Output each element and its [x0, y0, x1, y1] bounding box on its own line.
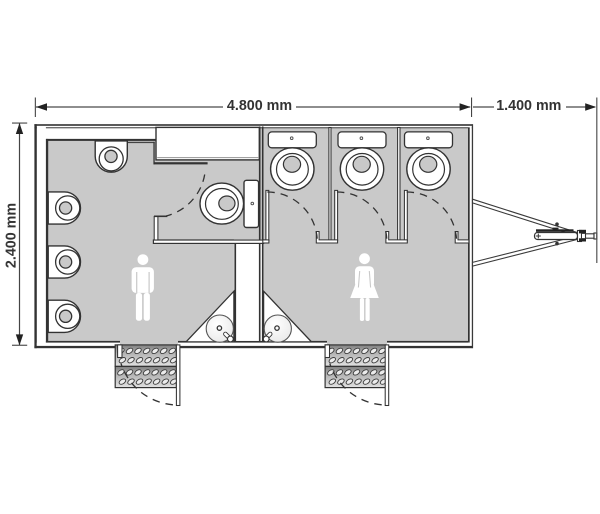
svg-text:1.400 mm: 1.400 mm — [496, 98, 561, 114]
svg-text:4.800 mm: 4.800 mm — [227, 98, 292, 114]
svg-text:2.400 mm: 2.400 mm — [4, 203, 20, 268]
